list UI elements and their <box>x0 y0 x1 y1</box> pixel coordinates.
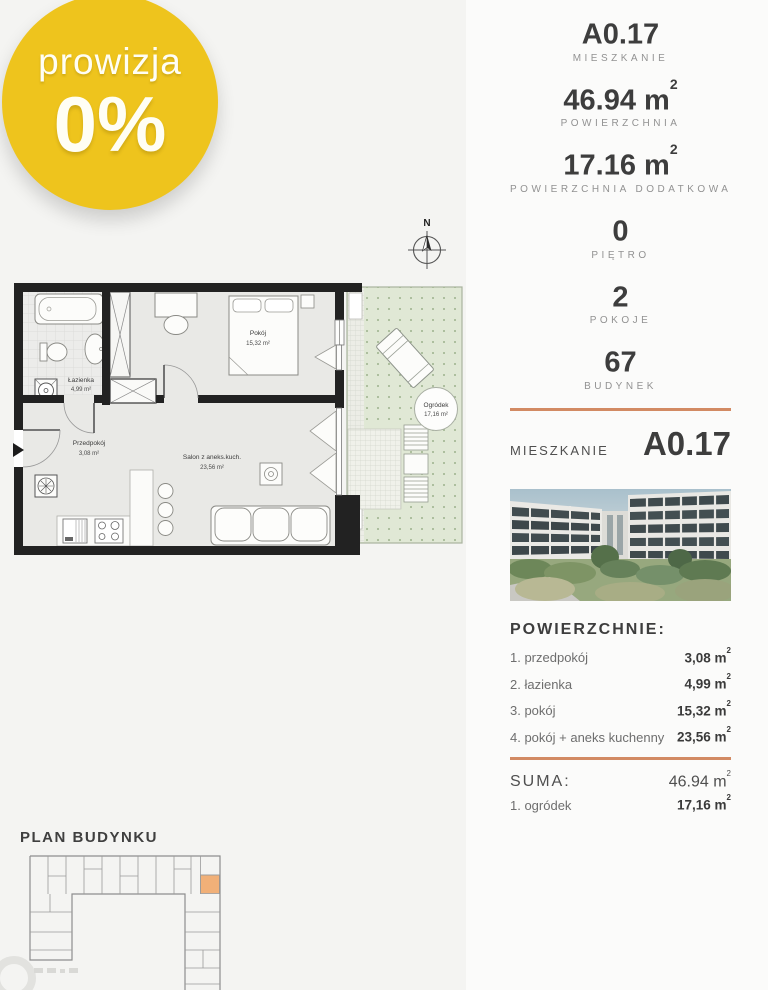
building-photo <box>510 489 731 601</box>
stat-extra-area: 17.16 m2 POWIERZCHNIA DODATKOWA <box>510 145 731 197</box>
nightstand <box>301 295 314 308</box>
highlighted-unit <box>201 875 220 894</box>
hall-label: Przedpokój <box>73 440 106 447</box>
garden-row: 1. ogródek 17,16 m2 <box>510 797 731 813</box>
shaft-closet <box>110 379 156 403</box>
garden-area-label: 17,16 m² <box>424 412 448 418</box>
stat-building: 67 BUDYNEK <box>510 342 731 394</box>
area-row: 1. przedpokój 3,08 m2 <box>510 650 731 666</box>
compass-icon: N <box>408 218 446 269</box>
stat-area: 46.94 m2 POWIERZCHNIA <box>510 80 731 132</box>
unit-header-value: A0.17 <box>643 425 731 463</box>
badge-line2: 0% <box>54 85 167 163</box>
floor-plan: N Ogródek 17,16 m² <box>10 205 465 560</box>
living-area: 23,56 m² <box>200 465 224 471</box>
living-label: Salon z aneks.kuch. <box>183 454 241 461</box>
bedroom-label: Pokój <box>250 330 266 337</box>
area-row: 3. pokój 15,32 m2 <box>510 703 731 719</box>
unit-header-label: MIESZKANIE <box>510 443 609 458</box>
areas-section-title: POWIERZCHNIE: <box>510 621 731 639</box>
garden-label: Ogródek <box>424 402 450 409</box>
stat-rooms: 2 POKOJE <box>510 277 731 329</box>
stat-unit: A0.17 MIESZKANIE <box>510 14 731 66</box>
bedroom-area: 15,32 m² <box>246 341 270 347</box>
bathtub <box>35 294 103 324</box>
sofa <box>211 506 330 545</box>
suma-row: SUMA: 46.94 m2 <box>510 773 731 791</box>
area-row: 2. łazienka 4,99 m2 <box>510 676 731 692</box>
accent-divider <box>510 757 731 760</box>
wardrobe <box>110 292 130 377</box>
hall-area: 3,08 m² <box>79 451 99 457</box>
toilet <box>40 343 67 361</box>
bathroom-area: 4,99 m² <box>71 387 91 393</box>
badge-line1: prowizja <box>38 41 182 83</box>
garden-area: Ogródek 17,16 m² <box>347 287 462 543</box>
building-plan-title: PLAN BUDYNKU <box>20 829 158 846</box>
stat-floor: 0 PIĘTRO <box>510 211 731 263</box>
unit-header: MIESZKANIE A0.17 <box>510 425 731 463</box>
accent-divider <box>510 408 731 411</box>
garden-table-set <box>404 425 428 502</box>
area-row: 4. pokój + aneks kuchenny 23,56 m2 <box>510 729 731 745</box>
details-panel: A0.17 MIESZKANIE 46.94 m2 POWIERZCHNIA 1… <box>478 0 768 813</box>
side-table <box>260 463 282 485</box>
commission-badge: prowizja 0% <box>2 0 218 210</box>
stats-list: A0.17 MIESZKANIE 46.94 m2 POWIERZCHNIA 1… <box>510 14 731 394</box>
compass-north-label: N <box>423 218 430 229</box>
bathroom-label: Łazienka <box>68 377 94 384</box>
watermark <box>0 945 90 990</box>
